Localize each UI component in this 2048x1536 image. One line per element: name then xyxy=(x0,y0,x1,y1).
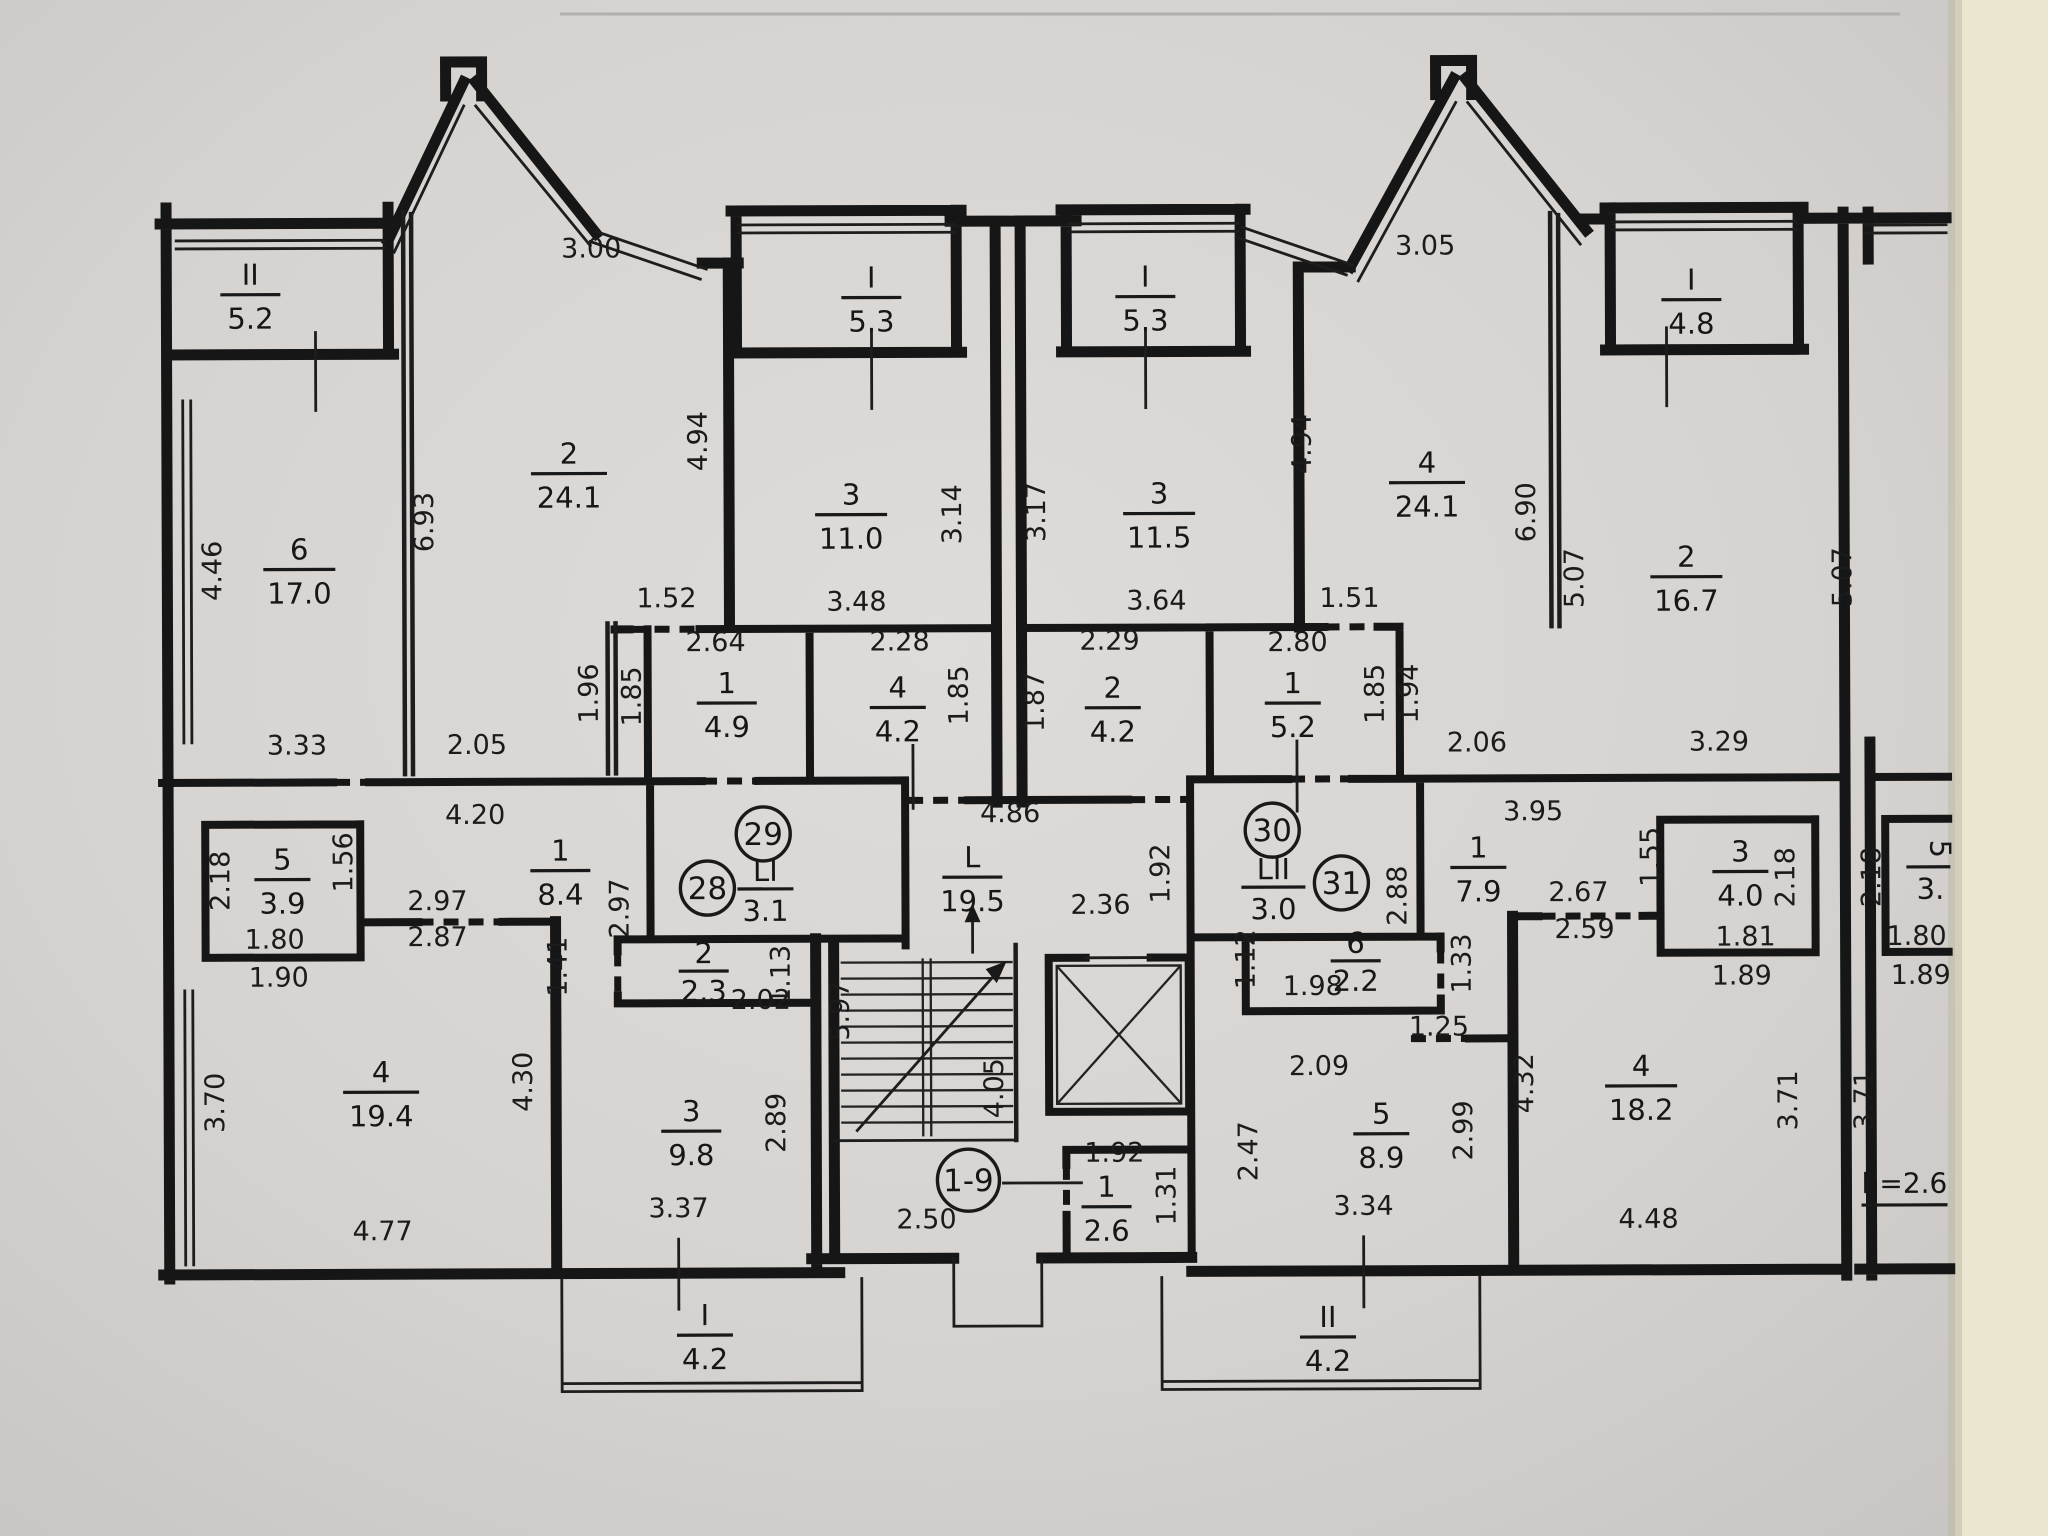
room-area: 4.8 xyxy=(1668,307,1714,341)
room-number: 3 xyxy=(1150,476,1169,510)
dim: 4.86 xyxy=(980,798,1040,829)
room-area: 4.2 xyxy=(1090,715,1136,749)
dim: 2.36 xyxy=(1070,890,1130,921)
dim: 1.87 xyxy=(1020,672,1051,732)
room-area: 7.9 xyxy=(1455,874,1501,908)
dim: 4.48 xyxy=(1618,1204,1678,1235)
dim: 1.25 xyxy=(1409,1011,1469,1042)
room-area: 5.3 xyxy=(848,304,894,338)
dim: 1.33 xyxy=(1447,933,1478,993)
floor-height: h=2.6 xyxy=(1862,1167,1948,1200)
dim: 1.31 xyxy=(1151,1165,1182,1225)
dim: 2.67 xyxy=(1548,877,1608,908)
room-area: 17.0 xyxy=(267,576,332,610)
apartment-28: 28 xyxy=(688,871,728,907)
room-area: 4.9 xyxy=(704,710,750,744)
dim: 6.90 xyxy=(1511,482,1542,542)
room-area: 3.0 xyxy=(1250,892,1296,926)
dim: 2.18 xyxy=(205,851,236,911)
dim: 2.59 xyxy=(1554,914,1614,945)
room-area: 5.2 xyxy=(1270,710,1316,744)
room-area: 8.4 xyxy=(537,878,583,912)
room-number: 6 xyxy=(1346,926,1365,960)
dim: 4.05 xyxy=(979,1058,1010,1118)
dim: 1.52 xyxy=(636,583,696,614)
dim: 2.99 xyxy=(1448,1100,1479,1160)
dim: 2.06 xyxy=(1447,727,1507,758)
dim: 1.98 xyxy=(1283,971,1343,1002)
dim: 1.51 xyxy=(1319,583,1379,614)
dim: 2.97 xyxy=(604,878,635,938)
room-number: 3 xyxy=(682,1094,701,1128)
room-number: L xyxy=(964,840,980,874)
dim: 3.71 xyxy=(1773,1070,1804,1130)
dim: 4.77 xyxy=(352,1216,412,1247)
room-number: 4 xyxy=(1418,446,1437,480)
apartment-29: 29 xyxy=(743,817,783,853)
room-area: 16.7 xyxy=(1654,584,1719,618)
room-number: I xyxy=(1687,263,1696,297)
room-area: 9.8 xyxy=(668,1138,714,1172)
dim: 1.81 xyxy=(1715,921,1775,952)
floor-plan-photo: II5.2 617.0 224.1 I5.3 311.0 14.9 44.2 1… xyxy=(0,0,2048,1536)
dim: 1.13 xyxy=(766,945,797,1005)
apartment-31: 31 xyxy=(1322,866,1362,902)
dim: 6.93 xyxy=(409,492,440,552)
room-area: 24.1 xyxy=(537,480,602,514)
dim: 2.50 xyxy=(896,1204,956,1235)
room-area: 3.1 xyxy=(742,894,788,928)
dim: 1.80 xyxy=(1886,921,1946,952)
dim: 4.46 xyxy=(197,541,228,601)
room-number: II xyxy=(242,258,259,292)
dim: 3.14 xyxy=(937,484,968,544)
room-area: 4.2 xyxy=(682,1342,728,1376)
dim: 5.07 xyxy=(1827,547,1858,607)
room-area: 4.0 xyxy=(1717,878,1763,912)
dim: 1.55 xyxy=(1635,827,1666,887)
dim: 2.18 xyxy=(1770,847,1801,907)
room-area: 4.2 xyxy=(875,714,921,748)
dim: 1.80 xyxy=(244,925,304,956)
dim: 2.18 xyxy=(1856,847,1887,907)
room-number: 6 xyxy=(290,532,309,566)
dim: 4.32 xyxy=(1509,1053,1540,1113)
dim: 2.05 xyxy=(447,730,507,761)
room-area: 3. xyxy=(1917,872,1945,906)
apartment-30: 30 xyxy=(1252,813,1292,849)
paper-edge-shadow xyxy=(1948,0,1962,1536)
room-area: 2.6 xyxy=(1083,1214,1129,1248)
dim: 3.34 xyxy=(1333,1191,1393,1222)
dim: 1.85 xyxy=(1360,664,1391,724)
dim-bay-left: 3.00 xyxy=(561,233,621,264)
dim: 5.97 xyxy=(825,981,856,1041)
room-number: 3 xyxy=(1731,834,1750,868)
room-number: 3 xyxy=(842,478,861,512)
height-note: h=2.6 xyxy=(1861,1167,1947,1205)
dim: 1.90 xyxy=(249,962,309,993)
room-number: 2 xyxy=(1677,540,1696,574)
room-number: I xyxy=(867,261,876,295)
dim: 1.12 xyxy=(1231,929,1262,989)
dim: 5.07 xyxy=(1559,548,1590,608)
dim: 1.92 xyxy=(1084,1138,1144,1169)
room-number: 5 xyxy=(1372,1097,1391,1131)
dim: 2.88 xyxy=(1382,866,1413,926)
dim: 1.92 xyxy=(1145,843,1176,903)
room-number: 1 xyxy=(1283,666,1302,700)
room-number: 4 xyxy=(372,1055,391,1089)
dim: 1.41 xyxy=(543,937,574,997)
dim: 3.71 xyxy=(1849,1070,1880,1130)
dim: 2.29 xyxy=(1079,626,1139,657)
room-area: 3.9 xyxy=(259,887,305,921)
dim: 1.89 xyxy=(1712,960,1772,991)
room-number: 1 xyxy=(1097,1170,1116,1204)
room-area: 24.1 xyxy=(1395,489,1460,523)
dim: 4.94 xyxy=(683,411,714,471)
dim: 2.09 xyxy=(1289,1051,1349,1082)
room-area: 19.4 xyxy=(349,1099,414,1133)
room-number: 2 xyxy=(560,437,579,471)
room-number: 2 xyxy=(694,936,713,970)
dim: 2.97 xyxy=(407,886,467,917)
dim: 2.80 xyxy=(1267,627,1327,658)
room-area: 5.2 xyxy=(227,302,273,336)
dim: 4.30 xyxy=(508,1052,539,1112)
room-number: I xyxy=(701,1298,710,1332)
dim: 4.94 xyxy=(1287,414,1318,474)
room-area: 4.2 xyxy=(1305,1344,1351,1378)
room-area: 5.3 xyxy=(1122,303,1168,337)
dim: 1.56 xyxy=(328,832,359,892)
room-number: 5 xyxy=(1923,840,1957,859)
dim-bay-right: 3.05 xyxy=(1395,230,1455,261)
dim: 2.64 xyxy=(685,627,745,658)
dim: 1.96 xyxy=(574,663,605,723)
room-area: 8.9 xyxy=(1358,1141,1404,1175)
dim: 3.70 xyxy=(200,1073,231,1133)
dim: 1.85 xyxy=(944,665,975,725)
dim: 3.33 xyxy=(267,730,327,761)
dim: 3.29 xyxy=(1689,726,1749,757)
dim: 2.89 xyxy=(761,1093,792,1153)
room-area: 11.5 xyxy=(1127,520,1192,554)
dim: 1.89 xyxy=(1891,960,1951,991)
room-area: 18.2 xyxy=(1609,1093,1674,1127)
dim: 4.20 xyxy=(445,800,505,831)
dim: 2.47 xyxy=(1233,1121,1264,1181)
dim: 2.87 xyxy=(407,922,467,953)
dim: 1.94 xyxy=(1394,664,1425,724)
dim: 1.85 xyxy=(617,666,648,726)
dim: 3.17 xyxy=(1021,482,1052,542)
dim: 3.95 xyxy=(1503,796,1563,827)
room-number: 4 xyxy=(888,670,907,704)
dim: 3.37 xyxy=(648,1193,708,1224)
room-area: 2.3 xyxy=(681,974,727,1008)
dim: 3.48 xyxy=(826,586,886,617)
room-number: 1 xyxy=(717,666,736,700)
room-area: 11.0 xyxy=(819,521,884,555)
room-number: 1 xyxy=(1469,830,1488,864)
room-number: 5 xyxy=(273,843,292,877)
dim: 3.64 xyxy=(1126,585,1186,616)
room-area: 19.5 xyxy=(940,884,1005,918)
floor-plan-svg: II5.2 617.0 224.1 I5.3 311.0 14.9 44.2 1… xyxy=(0,0,2048,1536)
room-number: 4 xyxy=(1632,1049,1651,1083)
room-number: II xyxy=(1319,1300,1336,1334)
stairs-range: 1-9 xyxy=(943,1163,994,1199)
room-number: 1 xyxy=(551,834,570,868)
dim: 2.28 xyxy=(869,626,929,657)
room-number: I xyxy=(1141,260,1150,294)
room-number: 2 xyxy=(1103,671,1122,705)
